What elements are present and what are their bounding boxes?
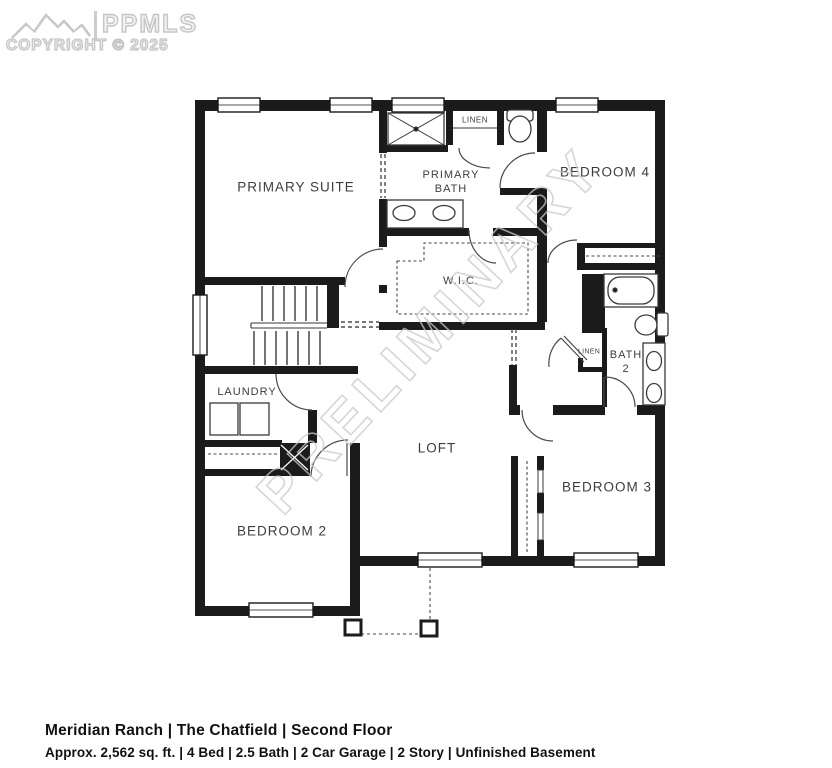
- stairs: [251, 286, 327, 365]
- room-label-primary-bath-line1: PRIMARY: [423, 168, 480, 182]
- vanity-primary: [387, 200, 463, 228]
- plan-caption: Meridian Ranch | The Chatfield | Second …: [45, 722, 596, 760]
- room-label-bath2-line1: BATH: [610, 348, 643, 362]
- room-label-wic: W.I.C.: [443, 275, 479, 287]
- room-label-linen-hall: LINEN: [578, 349, 600, 356]
- room-label-loft: LOFT: [418, 441, 457, 456]
- washer-dryer: [210, 403, 269, 435]
- room-label-bedroom3: BEDROOM 3: [562, 480, 652, 495]
- room-label-bath2: BATH 2: [610, 348, 643, 376]
- room-label-primary-bath-line2: BATH: [423, 182, 480, 196]
- toilet-primary: [507, 110, 533, 142]
- plan-specs: Approx. 2,562 sq. ft. | 4 Bed | 2.5 Bath…: [45, 745, 596, 760]
- room-label-primary-suite: PRIMARY SUITE: [237, 180, 355, 195]
- shower: [388, 113, 444, 145]
- bathtub: [604, 274, 658, 307]
- floor-plan-page: PPMLS COPYRIGHT © 2025: [0, 0, 832, 768]
- toilet-bath2: [635, 313, 668, 336]
- room-label-bedroom2: BEDROOM 2: [237, 524, 327, 539]
- room-label-primary-bath: PRIMARY BATH: [423, 168, 480, 196]
- plan-title: Meridian Ranch | The Chatfield | Second …: [45, 722, 596, 740]
- room-label-laundry: LAUNDRY: [217, 386, 276, 398]
- vanity-bath2: [643, 343, 665, 405]
- room-label-bath2-line2: 2: [610, 362, 643, 376]
- floor-plan-drawing: [0, 0, 832, 768]
- room-label-bedroom4: BEDROOM 4: [560, 165, 650, 180]
- room-label-linen-top: LINEN: [462, 116, 488, 125]
